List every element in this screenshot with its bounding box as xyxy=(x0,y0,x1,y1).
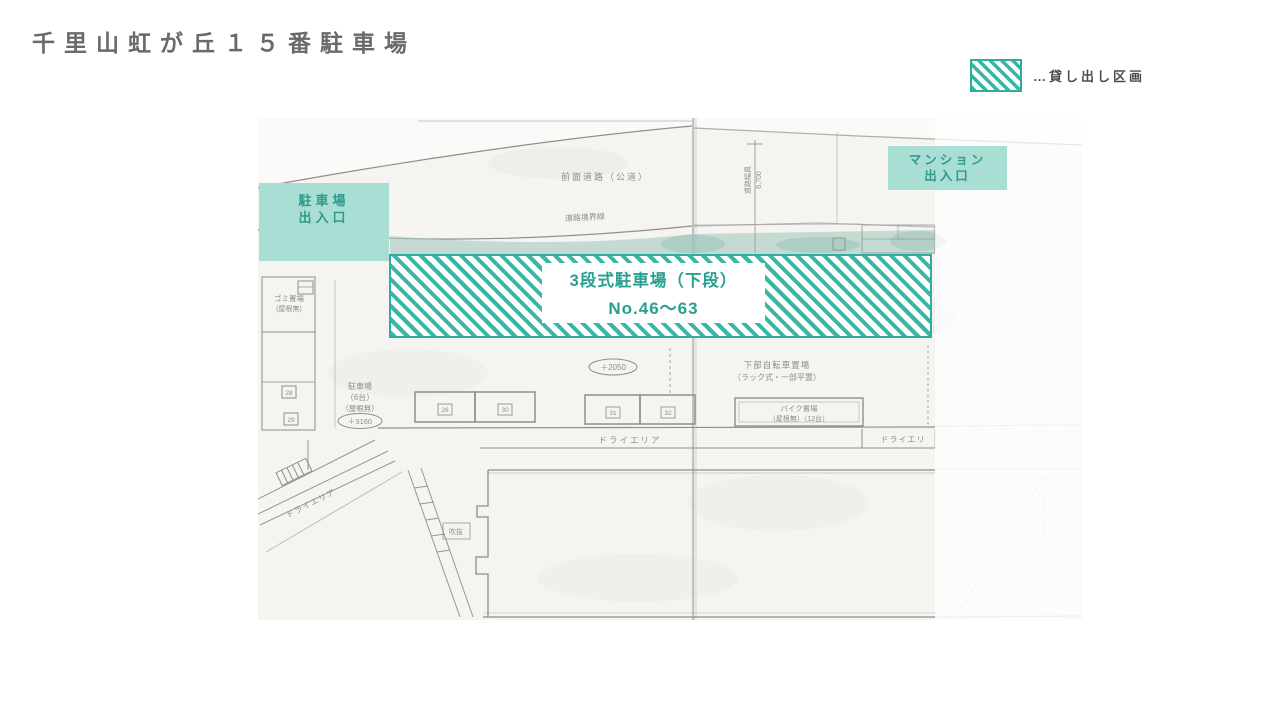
stall-26: 26 xyxy=(441,407,449,414)
legend: …貸し出し区画 xyxy=(970,59,1145,92)
bicycle-label-2: （ラック式・一部平置） xyxy=(733,372,821,382)
stall-29: 29 xyxy=(287,417,295,424)
bicycle-label-1: 下部自転車置場 xyxy=(744,360,811,370)
scan-fade xyxy=(935,118,1082,620)
parking-entrance-line2: 出入口 xyxy=(259,209,389,226)
small-lot-1: 駐車場 xyxy=(348,381,372,391)
hatch-swatch-icon xyxy=(970,59,1022,92)
scan-seam-line xyxy=(693,118,695,620)
stall-32: 32 xyxy=(664,410,672,417)
dry-area-right-label: ドライエリ xyxy=(881,435,926,444)
road-boundary-label: 道路境界線 xyxy=(565,211,605,223)
parking-site-plan: 道路幅員 6,700 前面道路（公道） 道路境界線 ゴミ置場 (屋根無) xyxy=(258,118,1082,620)
rental-area-label: 3段式駐車場（下段） No.46～63 xyxy=(542,263,765,323)
void-label: 吹抜 xyxy=(449,527,463,536)
small-lot-2: （6台） xyxy=(346,392,374,402)
page-title: 千里山虹が丘１５番駐車場 xyxy=(32,24,416,58)
bike-label-2: （屋根無）（12台） xyxy=(769,414,829,423)
road-width-value: 6,700 xyxy=(756,171,763,189)
rental-area-hatch: 3段式駐車場（下段） No.46～63 xyxy=(389,254,932,338)
rental-area-line1: 3段式駐車場（下段） xyxy=(570,267,738,291)
parking-entrance-box: 駐車場 出入口 xyxy=(259,183,389,261)
stall-30: 30 xyxy=(501,407,509,414)
front-road-label: 前面道路（公道） xyxy=(561,171,649,182)
garbage-label-1: ゴミ置場 xyxy=(274,293,304,303)
stall-31: 31 xyxy=(609,410,617,417)
bike-label-1: バイク置場 xyxy=(780,403,818,413)
mansion-entrance-box: マンション 出入口 xyxy=(888,146,1007,190)
center-level-label: ＋2050 xyxy=(600,363,626,372)
small-lot-3: （屋根無） xyxy=(341,403,379,413)
parking-entrance-line1: 駐車場 xyxy=(259,192,389,209)
mansion-entrance-line1: マンション xyxy=(888,152,1007,168)
small-lot-level: ＋3160 xyxy=(348,417,372,426)
rental-area-line2: No.46～63 xyxy=(608,294,698,319)
dry-area-center-label: ドライエリア xyxy=(599,435,662,445)
mansion-entrance-line2: 出入口 xyxy=(888,168,1007,184)
garbage-label-2: (屋根無) xyxy=(276,304,302,313)
stall-28: 28 xyxy=(285,390,293,397)
legend-label: …貸し出し区画 xyxy=(1033,66,1145,85)
road-width-label: 道路幅員 xyxy=(743,166,752,194)
